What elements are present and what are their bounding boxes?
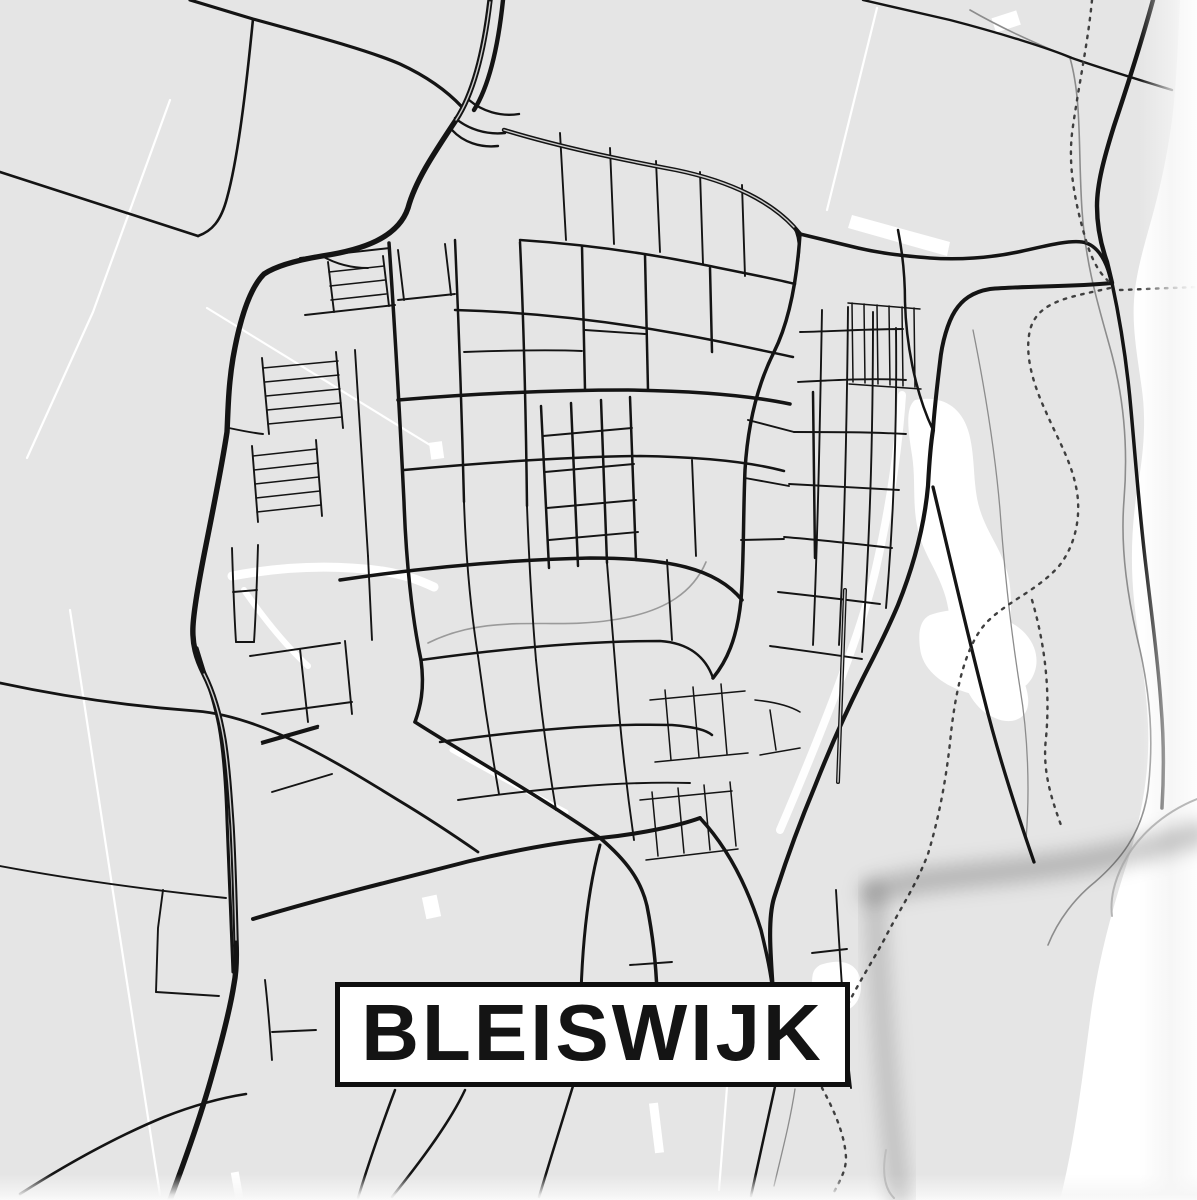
poster-bottom-edge (0, 1174, 1197, 1200)
poster-mockup: BLEISWIJK (0, 0, 1197, 1200)
city-name-plate: BLEISWIJK (335, 982, 850, 1087)
city-name-label: BLEISWIJK (361, 993, 824, 1073)
poster-right-edge (1139, 0, 1197, 1200)
